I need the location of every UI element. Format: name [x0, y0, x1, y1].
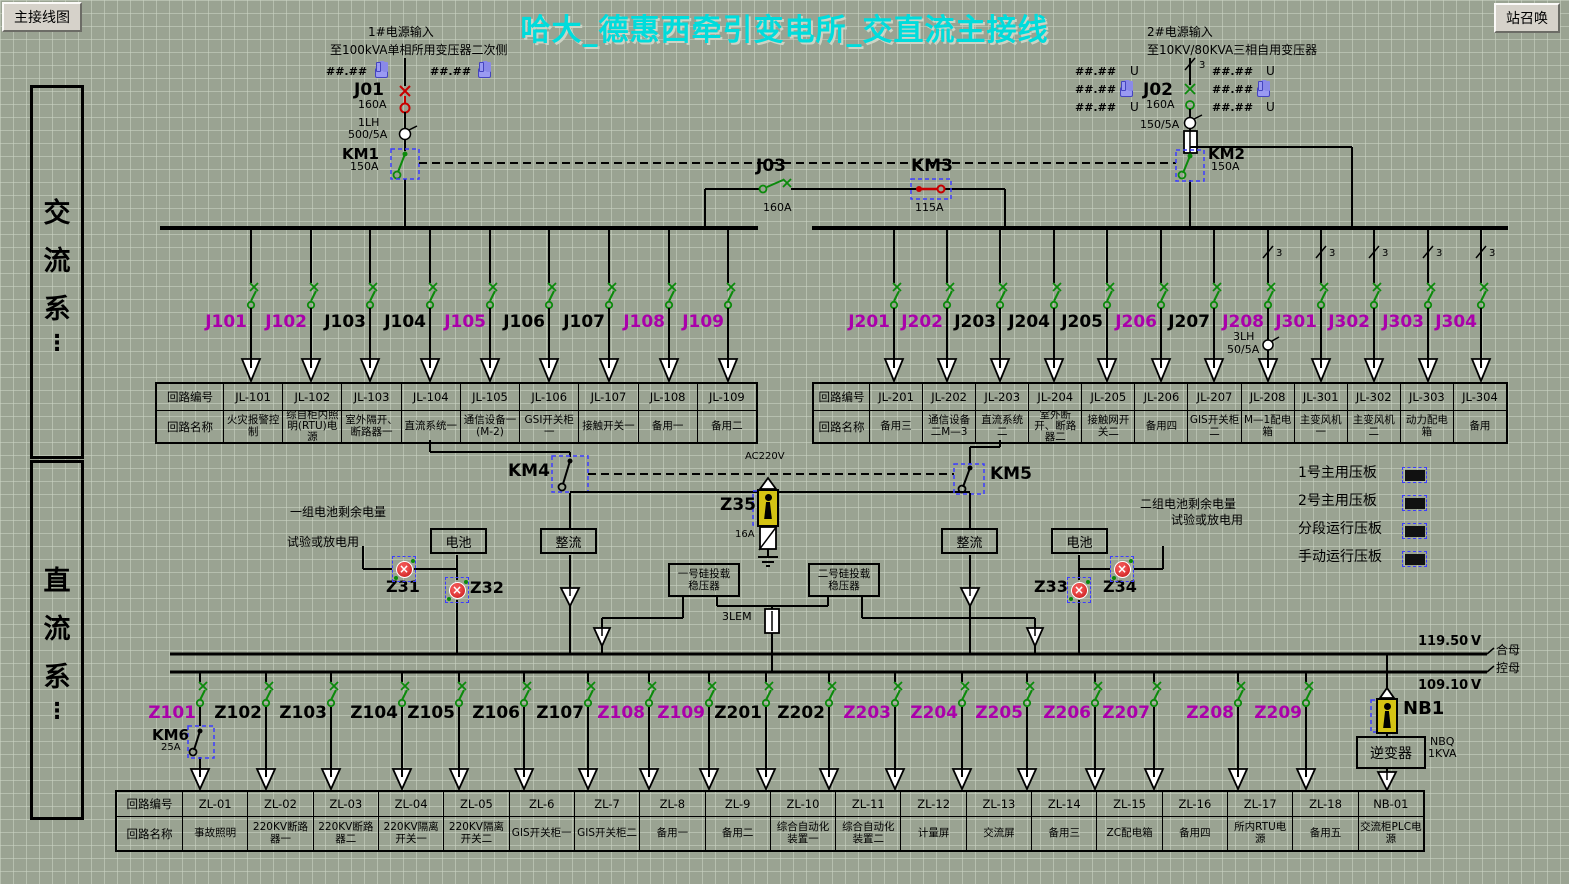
- stabilizer1-box: 一号硅投载稳压器: [668, 563, 740, 597]
- circuit-id-cell: JL-202: [922, 384, 975, 410]
- circuit-name-cell: 220KV隔离开关一: [378, 816, 443, 850]
- source2-subtitle: 至10KV/80KVA三相自用变压器: [1147, 44, 1317, 57]
- source1-measurement: ##.##: [430, 66, 471, 78]
- plate-label: 1号主用压板: [1298, 466, 1377, 481]
- feeder-label-Z105[interactable]: Z105: [399, 704, 455, 723]
- dc-table: 回路编号ZL-01ZL-02ZL-03ZL-04ZL-05ZL-6ZL-7ZL-…: [115, 790, 1425, 852]
- plate-label: 手动运行压板: [1298, 550, 1382, 565]
- contactor-label-KM5[interactable]: KM5: [990, 465, 1032, 484]
- circuit-name-cell: ZC配电箱: [1096, 816, 1161, 850]
- breaker-label-J02[interactable]: J02: [1143, 81, 1173, 100]
- feeder-label-Z107[interactable]: Z107: [528, 704, 584, 723]
- battery1-test-label: 试验或放电用: [287, 536, 359, 549]
- switch-Z32-icon[interactable]: [445, 577, 469, 603]
- feeder-label-J107[interactable]: J107: [549, 313, 605, 332]
- feeder-label-Z108[interactable]: Z108: [589, 704, 645, 723]
- sidebar-char: 系: [44, 655, 71, 694]
- feeder-label-J202[interactable]: J202: [887, 313, 943, 332]
- circuit-name-cell: 备用二: [705, 816, 770, 850]
- sidebar-ellipsis: ⋮: [46, 335, 68, 353]
- circuit-id-cell: JL-201: [869, 384, 922, 410]
- circuit-id-cell: ZL-11: [835, 792, 900, 816]
- circuit-name-cell: 主变风机二: [1347, 410, 1400, 442]
- feeder-label-J201[interactable]: J201: [834, 313, 890, 332]
- unit-label: U: [1266, 65, 1275, 78]
- circuit-name-cell: 220KV隔离开关二: [443, 816, 508, 850]
- circuit-name-cell: M—1配电箱: [1241, 410, 1294, 442]
- circuit-name-cell: 接触开关一: [578, 410, 637, 442]
- feeder-label-J208[interactable]: J208: [1208, 313, 1264, 332]
- feeder-label-J106[interactable]: J106: [489, 313, 545, 332]
- ac-table-right: 回路编号JL-201JL-202JL-203JL-204JL-205JL-206…: [812, 382, 1508, 444]
- circuit-name-cell: 备用一: [639, 816, 704, 850]
- circuit-id-cell: JL-103: [341, 384, 400, 410]
- feeder-label-J102[interactable]: J102: [251, 313, 307, 332]
- hand-icon[interactable]: [477, 62, 491, 77]
- circuit-id-cell: JL-302: [1347, 384, 1400, 410]
- source1-subtitle: 至100kVA单相所用变压器二次侧: [330, 44, 508, 57]
- circuit-id-cell: JL-303: [1400, 384, 1453, 410]
- contactor-label-KM4[interactable]: KM4: [508, 462, 550, 481]
- circuit-name-cell: 备用四: [1162, 816, 1227, 850]
- source1-title: 1#电源输入: [368, 26, 434, 39]
- feeder-label-Z101[interactable]: Z101: [140, 704, 196, 723]
- breaker-rating: 160A: [1146, 99, 1175, 111]
- feeder-label-Z207[interactable]: Z207: [1094, 704, 1150, 723]
- circuit-id-cell: JL-304: [1453, 384, 1506, 410]
- circuit-id-cell: ZL-9: [705, 792, 770, 816]
- circuit-name-cell: 通信设备一(M-2): [460, 410, 519, 442]
- table-header: 回路名称: [117, 816, 182, 850]
- circuit-id-cell: ZL-12: [900, 792, 965, 816]
- ct-ratio: 500/5A: [348, 129, 387, 141]
- feeder-label-J109[interactable]: J109: [668, 313, 724, 332]
- circuit-id-cell: JL-206: [1134, 384, 1187, 410]
- feeder-label-Z205[interactable]: Z205: [967, 704, 1023, 723]
- table-header: 回路编号: [117, 792, 182, 816]
- circuit-id-cell: ZL-18: [1292, 792, 1357, 816]
- hand-icon[interactable]: [374, 62, 388, 77]
- hand-icon[interactable]: [1256, 81, 1270, 96]
- ct-ratio: 50/5A: [1227, 344, 1259, 356]
- circuit-name-cell: 备用四: [1134, 410, 1187, 442]
- feeder-label-J301[interactable]: J301: [1261, 313, 1317, 332]
- circuit-id-cell: JL-101: [223, 384, 282, 410]
- feeder-label-J203[interactable]: J203: [940, 313, 996, 332]
- feeder-label-Z203[interactable]: Z203: [835, 704, 891, 723]
- device-NB1-icon[interactable]: [1376, 698, 1398, 734]
- circuit-id-cell: ZL-15: [1096, 792, 1161, 816]
- feeder-label-J104[interactable]: J104: [370, 313, 426, 332]
- plate-indicator[interactable]: [1402, 495, 1427, 511]
- switch-rating: 160A: [763, 202, 792, 214]
- switch-Z34-icon[interactable]: [1110, 556, 1134, 582]
- circuit-name-cell: 所内RTU电源: [1227, 816, 1292, 850]
- circuit-name-cell: GIS开关柜二: [1187, 410, 1240, 442]
- feeder-label-J205[interactable]: J205: [1047, 313, 1103, 332]
- feeder-label-Z201[interactable]: Z201: [706, 704, 762, 723]
- circuit-name-cell: GSI开关柜一: [519, 410, 578, 442]
- table-header: 回路名称: [157, 410, 223, 442]
- device-label-NB1[interactable]: NB1: [1403, 699, 1444, 719]
- circuit-name-cell: GIS开关柜一: [509, 816, 574, 850]
- switch-label-Z33[interactable]: Z33: [1034, 578, 1068, 596]
- circuit-id-cell: JL-204: [1028, 384, 1081, 410]
- bus-voltage-top: 119.50: [1418, 635, 1468, 649]
- feeder-label-Z106[interactable]: Z106: [464, 704, 520, 723]
- feeder-label-J103[interactable]: J103: [310, 313, 366, 332]
- circuit-name-cell: 通信设备二M—3: [922, 410, 975, 442]
- feeder-label-Z208[interactable]: Z208: [1178, 704, 1234, 723]
- circuit-name-cell: 火灾报警控制: [223, 410, 282, 442]
- ac220v-label: AC220V: [745, 451, 785, 462]
- source1-measurement: ##.##: [326, 66, 367, 78]
- circuit-id-cell: ZL-17: [1227, 792, 1292, 816]
- circuit-name-cell: 室外断开、断路器二: [1028, 410, 1081, 442]
- circuit-id-cell: JL-301: [1294, 384, 1347, 410]
- battery2-test-label: 试验或放电用: [1171, 514, 1243, 527]
- battery1-charge-label: 一组电池剩余电量: [290, 506, 386, 519]
- feeder-label-J101[interactable]: J101: [191, 313, 247, 332]
- circuit-name-cell: 备用: [1453, 410, 1506, 442]
- circuit-name-cell: 备用一: [638, 410, 697, 442]
- person-icon: [759, 491, 777, 525]
- circuit-id-cell: ZL-14: [1031, 792, 1096, 816]
- table-header: 回路编号: [157, 384, 223, 410]
- svg-text:3: 3: [1276, 248, 1282, 259]
- feeder-label-J206[interactable]: J206: [1101, 313, 1157, 332]
- circuit-name-cell: 计量屏: [900, 816, 965, 850]
- circuit-name-cell: 交流柜PLC电源: [1358, 816, 1423, 850]
- bus-bottom-label: 控母: [1496, 662, 1520, 675]
- circuit-name-cell: 备用三: [869, 410, 922, 442]
- ct-name: 3LH: [1233, 331, 1254, 343]
- table-header: 回路名称: [814, 410, 869, 442]
- breaker-label-J01[interactable]: J01: [354, 81, 384, 100]
- bus-top-label: 合母: [1496, 644, 1520, 657]
- circuit-id-cell: ZL-13: [966, 792, 1031, 816]
- hand-icon[interactable]: [1119, 81, 1133, 96]
- fuse-rating: 16A: [735, 529, 755, 540]
- circuit-id-cell: ZL-02: [247, 792, 312, 816]
- feeder-label-Z104[interactable]: Z104: [342, 704, 398, 723]
- voltage-unit: V: [1471, 679, 1481, 693]
- battery2-box[interactable]: 电池: [1051, 528, 1108, 554]
- fuse-label-3LEM: 3LEM: [722, 611, 752, 623]
- circuit-name-cell: 备用二: [697, 410, 756, 442]
- circuit-name-cell: 直流系统二: [975, 410, 1028, 442]
- contactor-rating: 150A: [1211, 161, 1240, 173]
- circuit-id-cell: JL-109: [697, 384, 756, 410]
- feeder-label-Z109[interactable]: Z109: [649, 704, 705, 723]
- sidebar-ellipsis: ⋮: [46, 703, 68, 721]
- dc-system-panel: 直流系⋮: [30, 460, 84, 820]
- rectifier2-box[interactable]: 整流: [941, 528, 998, 554]
- circuit-name-cell: GIS开关柜二: [574, 816, 639, 850]
- person-icon: [1378, 700, 1396, 732]
- circuit-id-cell: ZL-03: [313, 792, 378, 816]
- source2-measurement: ##.##: [1212, 84, 1253, 96]
- switch-rating: 115A: [915, 202, 944, 214]
- table-header: 回路编号: [814, 384, 869, 410]
- svg-text:3: 3: [1489, 248, 1495, 259]
- circuit-id-cell: ZL-16: [1162, 792, 1227, 816]
- feeder-label-Z202[interactable]: Z202: [769, 704, 825, 723]
- circuit-name-cell: 接触网开关二: [1081, 410, 1134, 442]
- svg-text:3: 3: [1436, 248, 1442, 259]
- sidebar-char: 交: [44, 191, 71, 230]
- bus-voltage-bottom: 109.10: [1418, 679, 1468, 693]
- switch-Z31-icon[interactable]: [392, 556, 416, 582]
- svg-text:3: 3: [1382, 248, 1388, 259]
- circuit-id-cell: JL-102: [282, 384, 341, 410]
- source2-title: 2#电源输入: [1147, 26, 1213, 39]
- circuit-id-cell: JL-208: [1241, 384, 1294, 410]
- switch-label-J03[interactable]: J03: [756, 157, 786, 176]
- ac-table-left: 回路编号JL-101JL-102JL-103JL-104JL-105JL-106…: [155, 382, 758, 444]
- ct-ratio: 150/5A: [1140, 119, 1179, 131]
- circuit-name-cell: 备用三: [1031, 816, 1096, 850]
- circuit-id-cell: NB-01: [1358, 792, 1423, 816]
- feeder-label-Z103[interactable]: Z103: [271, 704, 327, 723]
- feeder-label-J303[interactable]: J303: [1368, 313, 1424, 332]
- feeder-label-J204[interactable]: J204: [994, 313, 1050, 332]
- circuit-id-cell: JL-107: [578, 384, 637, 410]
- circuit-name-cell: 直流系统一: [401, 410, 460, 442]
- switch-label-Z32[interactable]: Z32: [470, 579, 504, 597]
- device-Z35-icon[interactable]: [757, 489, 779, 527]
- stabilizer2-box: 二号硅投载稳压器: [808, 563, 880, 597]
- contactor-rating: 25A: [161, 742, 181, 753]
- voltage-unit: V: [1471, 635, 1481, 649]
- circuit-id-cell: ZL-05: [443, 792, 508, 816]
- circuit-name-cell: 综合自动化装置一: [770, 816, 835, 850]
- battery2-charge-label: 二组电池剩余电量: [1140, 498, 1236, 511]
- inverter-rating: 1KVA: [1428, 748, 1457, 760]
- feeder-label-J108[interactable]: J108: [609, 313, 665, 332]
- feeder-label-Z206[interactable]: Z206: [1035, 704, 1091, 723]
- source2-measurement: ##.##: [1075, 66, 1116, 78]
- source2-measurement: ##.##: [1075, 102, 1116, 114]
- unit-label: U: [1130, 65, 1139, 78]
- ac-system-panel: 交流系⋮: [30, 85, 84, 459]
- circuit-id-cell: ZL-8: [639, 792, 704, 816]
- source2-measurement: ##.##: [1212, 66, 1253, 78]
- switch-label-KM3[interactable]: KM3: [911, 157, 953, 176]
- circuit-name-cell: 室外隔开、断路器一: [341, 410, 400, 442]
- plate-label: 2号主用压板: [1298, 494, 1377, 509]
- circuit-id-cell: ZL-04: [378, 792, 443, 816]
- circuit-id-cell: JL-104: [401, 384, 460, 410]
- circuit-id-cell: JL-207: [1187, 384, 1240, 410]
- circuit-name-cell: 备用五: [1292, 816, 1357, 850]
- source2-measurement: ##.##: [1212, 102, 1253, 114]
- battery1-box[interactable]: 电池: [430, 528, 487, 554]
- unit-label: U: [1266, 101, 1275, 114]
- circuit-name-cell: 综合自动化装置二: [835, 816, 900, 850]
- circuit-name-cell: 220KV断路器一: [247, 816, 312, 850]
- circuit-id-cell: JL-106: [519, 384, 578, 410]
- inverter-box: 逆变器: [1356, 736, 1426, 769]
- circuit-id-cell: ZL-7: [574, 792, 639, 816]
- circuit-id-cell: ZL-10: [770, 792, 835, 816]
- feeder-label-J302[interactable]: J302: [1314, 313, 1370, 332]
- device-label-Z35[interactable]: Z35: [720, 496, 756, 515]
- plate-indicator[interactable]: [1402, 467, 1427, 483]
- sidebar-char: 流: [44, 607, 71, 646]
- unit-label: U: [1130, 101, 1139, 114]
- circuit-name-cell: 动力配电箱: [1400, 410, 1453, 442]
- circuit-name-cell: 交流屏: [966, 816, 1031, 850]
- hmi-screen: 333333 主接线图 站召唤 哈大_德惠西牵引变电所_交直流主接线 交流系⋮ …: [0, 0, 1569, 884]
- sidebar-char: 系: [44, 287, 71, 326]
- circuit-name-cell: 220KV断路器二: [313, 816, 378, 850]
- plate-indicator[interactable]: [1402, 551, 1427, 567]
- plate-label: 分段运行压板: [1298, 522, 1382, 537]
- circuit-name-cell: 事故照明: [182, 816, 247, 850]
- feeder-label-Z209[interactable]: Z209: [1246, 704, 1302, 723]
- svg-text:3: 3: [1329, 248, 1335, 259]
- feeder-label-Z204[interactable]: Z204: [902, 704, 958, 723]
- switch-Z33-icon[interactable]: [1067, 577, 1091, 603]
- contactor-rating: 150A: [350, 161, 379, 173]
- sidebar-char: 直: [44, 559, 71, 598]
- circuit-id-cell: JL-105: [460, 384, 519, 410]
- circuit-id-cell: JL-108: [638, 384, 697, 410]
- circuit-id-cell: ZL-01: [182, 792, 247, 816]
- breaker-rating: 160A: [358, 99, 387, 111]
- circuit-id-cell: JL-205: [1081, 384, 1134, 410]
- feeder-label-J105[interactable]: J105: [430, 313, 486, 332]
- circuit-id-cell: JL-203: [975, 384, 1028, 410]
- page-title: 哈大_德惠西牵引变电所_交直流主接线: [0, 5, 1569, 49]
- svg-text:3: 3: [1199, 60, 1205, 71]
- rectifier1-box[interactable]: 整流: [540, 528, 597, 554]
- feeder-label-J304[interactable]: J304: [1421, 313, 1477, 332]
- circuit-name-cell: 主变风机一: [1294, 410, 1347, 442]
- feeder-label-Z102[interactable]: Z102: [206, 704, 262, 723]
- circuit-id-cell: ZL-6: [509, 792, 574, 816]
- feeder-label-J207[interactable]: J207: [1154, 313, 1210, 332]
- plate-indicator[interactable]: [1402, 523, 1427, 539]
- circuit-name-cell: 综自柜内照明(RTU)电源: [282, 410, 341, 442]
- source2-measurement: ##.##: [1075, 84, 1116, 96]
- sidebar-char: 流: [44, 239, 71, 278]
